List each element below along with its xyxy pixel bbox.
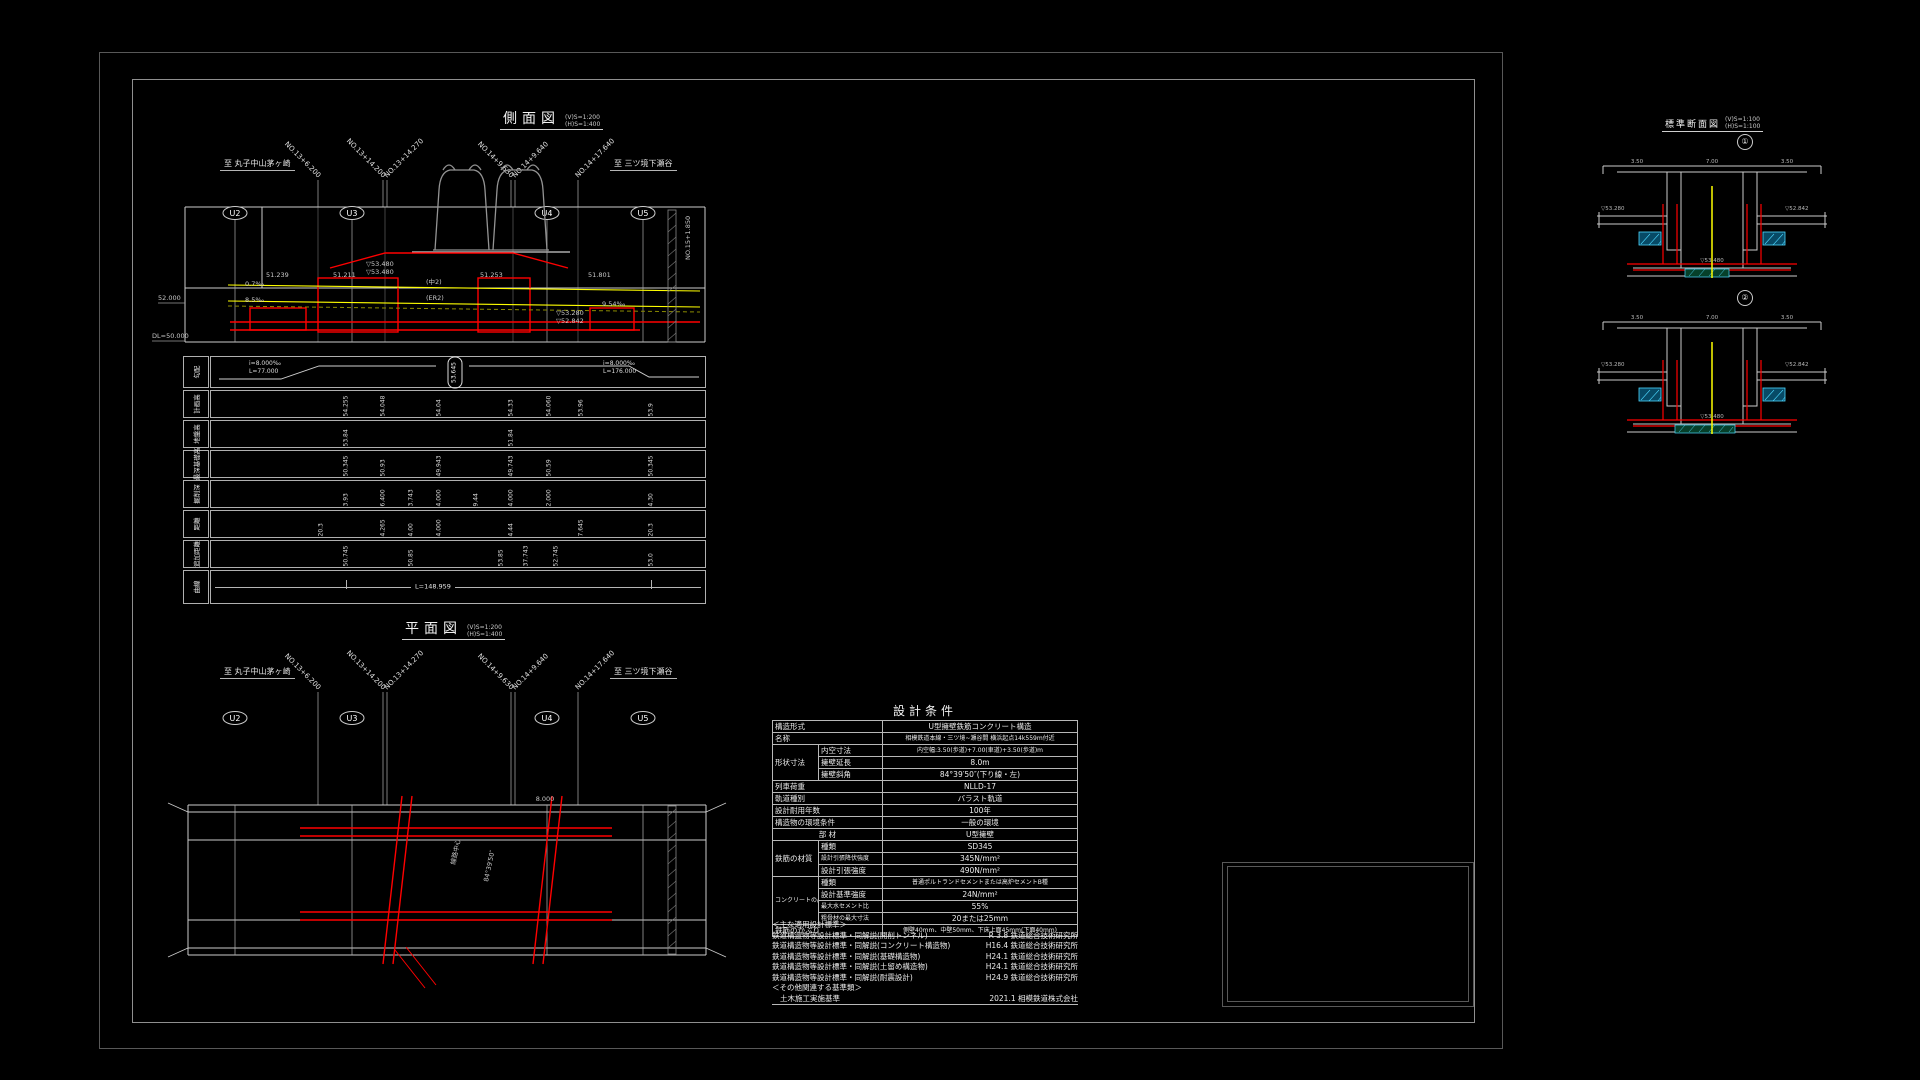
band-value: 7.645 (578, 507, 585, 537)
note-track-centerline: 線路中心 (448, 838, 462, 866)
standards-header-text: ＜主な適用設計標準＞ (772, 920, 847, 931)
band-row-label: 掘削深 (191, 484, 201, 504)
standard-ref: H24.9 鉄道総合技術研究所 (986, 973, 1078, 984)
band-value: 4.000 (436, 507, 443, 537)
band-row-label: 地盤高 (191, 424, 201, 444)
band-row-label: 計画高 (191, 394, 201, 414)
band-row-label-cell: 計画高 (183, 390, 209, 418)
standard-ref: H24.1 鉄道総合技術研究所 (986, 952, 1078, 963)
annotation: ▽53.480 (366, 268, 394, 276)
pier-U3: U3 (340, 712, 364, 725)
annotation: 9.54‰ (602, 300, 625, 308)
annotation: 8.5‰ (245, 296, 264, 304)
row-value: バラスト軌道 (883, 793, 1078, 805)
row-sub-label: 擁壁延長 (819, 757, 883, 769)
row-label: 部 材 (773, 829, 883, 841)
band-value: 37.743 (523, 537, 530, 567)
row-value: 100年 (883, 805, 1078, 817)
sections-title-text: 標準断面図 (1665, 117, 1720, 130)
table-row: 形状寸法 内空寸法 内空幅:3.50(歩道)+7.00(車道)+3.50(歩道)… (773, 745, 1078, 757)
table-row: 構造形式 U型擁壁鉄筋コンクリート構造 (773, 721, 1078, 733)
table-row: 列車荷重 NLLD-17 (773, 781, 1078, 793)
standard-name: 鉄道構造物等設計標準・同解説(土留め構造物) (772, 962, 928, 973)
row-sub-label: 内空寸法 (819, 745, 883, 757)
pier-label: U4 (542, 714, 553, 723)
station-label: NO.14+17.640 (574, 649, 616, 691)
row-value: 普通ポルトランドセメントまたは高炉セメントB種 (883, 877, 1078, 889)
dim-label: 3.50 (1781, 159, 1794, 165)
standard-ref: R 3.8 鉄道総合技術研究所 (989, 931, 1078, 942)
pier-U3: U3 (340, 207, 364, 220)
row-value: 8.0m (883, 757, 1078, 769)
row-label: 列車荷重 (773, 781, 883, 793)
band-row-cumulative-distance: 50.745 50.85 53.85 37.743 52.745 53.0 (210, 540, 706, 568)
band-value: 53.9 (648, 387, 655, 417)
row-value: 一般の環境 (883, 817, 1078, 829)
pier-label: U2 (230, 714, 241, 723)
elevation-label: 52.000 (158, 294, 181, 302)
row-group-label: 鉄筋の材質 (773, 841, 819, 877)
table-row: 擁壁延長 8.0m (773, 757, 1078, 769)
dim-label: 7.00 (1706, 159, 1719, 165)
dim-label: 3.50 (1631, 315, 1644, 321)
side-view-drawing: NO.13+6.200 NO.13+14.200 NO.13+14.270 NO… (150, 110, 720, 360)
row-sub-label: 擁壁斜角 (819, 769, 883, 781)
plan-view-drawing: NO.13+6.200 NO.13+14.200 NO.13+14.270 NO… (150, 620, 730, 995)
gradient-text: i=8.000‰ (603, 360, 635, 367)
row-sub-label: 設計基準強度 (819, 889, 883, 901)
band-value: 4.30 (648, 477, 655, 507)
table-row: 部 材 U型擁壁 (773, 829, 1078, 841)
plan-hatch-strip (668, 806, 676, 954)
band-value: 53.96 (578, 387, 585, 417)
band-value: 4.44 (508, 507, 515, 537)
row-value: 内空幅:3.50(歩道)+7.00(車道)+3.50(歩道)m (883, 745, 1078, 757)
curve-tick (346, 580, 347, 589)
row-label: 構造物の環境条件 (773, 817, 883, 829)
level-mark: ▽52.842 (1785, 206, 1808, 212)
row-sub-label: 種類 (819, 841, 883, 853)
gradient-text: L=176.000 (603, 368, 636, 375)
station-label: NO.14+9.630 (476, 652, 515, 691)
cross-section-2: 3.50 7.00 3.50 ▽53.280 ▽52.842 ▽53.480 (1597, 308, 1827, 443)
standard-name: 鉄道構造物等設計標準・同解説(耐震設計) (772, 973, 913, 984)
row-value: 相模鉄道本線・三ツ境~瀬谷間 横浜起点14k559m付近 (883, 733, 1078, 745)
side-pier-marks: U2 U3 U4 U5 (223, 207, 655, 220)
pier-U2: U2 (223, 712, 247, 725)
band-row-label-cell: 最深基礎高 (183, 450, 209, 478)
dim-label: 3.50 (1781, 315, 1794, 321)
band-row-distance: 20.3 4.265 4.00 4.000 4.44 7.645 20.3 (210, 510, 706, 538)
standard-item: 鉄道構造物等設計標準・同解説(コンクリート構造物) H16.4 鉄道総合技術研究… (772, 941, 1078, 952)
gradient-text: i=8.000‰ (249, 360, 281, 367)
band-value: 52.745 (553, 537, 560, 567)
band-value: 50.745 (343, 537, 350, 567)
table-row: コンクリートの品質 種類 普通ポルトランドセメントまたは高炉セメントB種 (773, 877, 1078, 889)
table-row: 名称 相模鉄道本線・三ツ境~瀬谷間 横浜起点14k559m付近 (773, 733, 1078, 745)
band-row-label-cell: 掘削深 (183, 480, 209, 508)
dim-label: 3.50 (1631, 159, 1644, 165)
band-row-label: 勾配 (191, 366, 201, 379)
annotation: (中2) (426, 277, 442, 286)
row-sub-label: 種類 (819, 877, 883, 889)
annotation: ▽53.480 (366, 260, 394, 268)
plan-red-structure (300, 796, 612, 988)
section-annotations: 3.50 7.00 3.50 ▽53.280 ▽52.842 ▽53.480 (1601, 315, 1808, 420)
standard-ref: H24.1 鉄道総合技術研究所 (986, 962, 1078, 973)
band-row-gradient: i=8.000‰ L=77.000 53.645 i=8.000‰ L=176.… (210, 356, 706, 388)
row-value: 24N/mm² (883, 889, 1078, 901)
note-skew-angle: 84°39′50″ (482, 849, 497, 882)
standards-header: ＜主な適用設計標準＞ (772, 920, 1078, 931)
plan-station-labels: NO.13+6.200 NO.13+14.200 NO.13+14.270 NO… (283, 649, 616, 691)
band-value: 51.84 (508, 417, 515, 447)
pier-label: U2 (230, 209, 241, 218)
design-conditions-header: 設計条件 (772, 700, 1078, 719)
standard-item: 鉄道構造物等設計標準・同解説(土留め構造物) H24.1 鉄道総合技術研究所 (772, 962, 1078, 973)
section-mark-2: ② (1737, 290, 1753, 306)
note-length: 8.000 (536, 795, 555, 803)
row-label: 名称 (773, 733, 883, 745)
table-row: 擁壁斜角 84°39′50″(下り線・左) (773, 769, 1078, 781)
level-mark: ▽53.480 (1700, 414, 1724, 420)
annotation: ▽52.842 (556, 317, 584, 325)
band-row-foundation-height: 50.345 50.93 49.943 49.743 50.59 50.345 (210, 450, 706, 478)
pier-label: U5 (638, 209, 649, 218)
station-label: NO.14+9.640 (511, 652, 550, 691)
curve-line (215, 587, 701, 588)
title-block-inner (1227, 866, 1469, 1002)
sections-scale-h: (H)S=1:100 (1725, 123, 1760, 130)
band-row-curve: L=148.959 (210, 570, 706, 604)
station-label: NO.13+14.270 (383, 649, 425, 691)
row-group-label: 形状寸法 (773, 745, 819, 781)
pier-label: U4 (542, 209, 553, 218)
row-label: 軌道種別 (773, 793, 883, 805)
band-value: 4.265 (380, 507, 387, 537)
band-value: 50.345 (343, 447, 350, 477)
annotation: ▽53.280 (556, 309, 584, 317)
gradient-text: L=77.000 (249, 368, 278, 375)
annotation: 51.211 (333, 271, 356, 279)
side-station-labels: NO.13+6.200 NO.13+14.200 NO.13+14.270 NO… (283, 137, 616, 179)
cad-sheet-canvas: 側面図 (V)S=1:200 (H)S=1:400 至 丸子中山茅ヶ崎 至 三ツ… (0, 0, 1920, 1080)
table-row: 設計引張強度 490N/mm² (773, 865, 1078, 877)
table-row: 設計引張降伏強度 345N/mm² (773, 853, 1078, 865)
pier-label: U3 (347, 714, 358, 723)
cross-section-1: 3.50 7.00 3.50 ▽53.280 ▽52.842 ▽53.480 (1597, 152, 1827, 287)
band-value: 50.85 (408, 537, 415, 567)
band-value: 54.33 (508, 387, 515, 417)
row-group-label: コンクリートの品質 (773, 877, 819, 925)
band-value: 49.743 (508, 447, 515, 477)
band-row-label: 追加距離 (191, 541, 201, 567)
band-row-excavation-depth: 3.93 6.400 3.743 4.000 9.44 4.000 2.000 … (210, 480, 706, 508)
annotation: 51.801 (588, 271, 611, 279)
section-mark-1: ① (1737, 134, 1753, 150)
table-row: 鉄筋の材質 種類 SD345 (773, 841, 1078, 853)
station-label: NO.13+14.270 (383, 137, 425, 179)
annotation: 51.253 (480, 271, 503, 279)
table-row: 最大水セメント比 55% (773, 901, 1078, 913)
standard-item: 鉄道構造物等設計標準・同解説(耐震設計) H24.9 鉄道総合技術研究所 (772, 973, 1078, 984)
band-value: 54.060 (546, 387, 553, 417)
standard-ref: H16.4 鉄道総合技術研究所 (986, 941, 1078, 952)
band-row-label-cell: 地盤高 (183, 420, 209, 448)
band-value: 3.93 (343, 477, 350, 507)
annotation: 0.7‰ (245, 280, 264, 288)
section-annotations: 3.50 7.00 3.50 ▽53.280 ▽52.842 ▽53.480 (1601, 159, 1808, 264)
row-sub-label: 最大水セメント比 (819, 901, 883, 913)
plan-notes: 線路中心 84°39′50″ 8.000 (448, 795, 554, 882)
pier-U4: U4 (535, 207, 559, 220)
station-label: NO.14+9.630 (476, 140, 515, 179)
band-value: 53.84 (343, 417, 350, 447)
others-header: ＜その他関連する基準類＞ (772, 983, 1078, 994)
design-conditions-title: 設計条件 (885, 704, 965, 721)
profile-band-table: 勾配 i=8.000‰ L=77.000 53.645 i=8.000‰ L=1… (183, 356, 707, 604)
band-row-label: 最深基礎高 (191, 448, 201, 481)
standard-item: 鉄道構造物等設計標準・同解説(基礎構造物) H24.1 鉄道総合技術研究所 (772, 952, 1078, 963)
level-mark: ▽53.280 (1601, 206, 1625, 212)
pier-U5: U5 (631, 207, 655, 220)
plan-station-leaders (318, 692, 578, 805)
band-value: 9.44 (473, 477, 480, 507)
level-mark: ▽53.280 (1601, 362, 1625, 368)
plan-pier-marks: U2 U3 U4 U5 (223, 712, 655, 725)
standard-name: 鉄道構造物等設計標準・同解説(コンクリート構造物) (772, 941, 950, 952)
table-row: 設計基準強度 24N/mm² (773, 889, 1078, 901)
band-value: 6.400 (380, 477, 387, 507)
table-row: 設計耐用年数 100年 (773, 805, 1078, 817)
pier-U2: U2 (223, 207, 247, 220)
band-row-ground-height: 53.84 51.84 (210, 420, 706, 448)
band-value: 20.3 (318, 507, 325, 537)
annotation: 51.239 (266, 271, 289, 279)
curve-length-label: L=148.959 (411, 583, 455, 591)
others-header-text: ＜その他関連する基準類＞ (772, 983, 862, 994)
side-station-leaders (318, 180, 578, 207)
table-row: 構造物の環境条件 一般の環境 (773, 817, 1078, 829)
standard-name: 土木施工実施基準 (772, 994, 840, 1005)
pier-U4: U4 (535, 712, 559, 725)
band-value: 54.04 (436, 387, 443, 417)
pier-label: U3 (347, 209, 358, 218)
sections-scale-v: (V)S=1:100 (1725, 116, 1760, 123)
band-value: 4.000 (508, 477, 515, 507)
band-value: 53.85 (498, 537, 505, 567)
row-value: SD345 (883, 841, 1078, 853)
band-row-label: 曲線 (191, 581, 201, 594)
standard-name: 鉄道構造物等設計標準・同解説(開削トンネル) (772, 931, 928, 942)
band-value: 53.0 (648, 537, 655, 567)
station-label: NO.14+17.640 (574, 137, 616, 179)
pier-label: U5 (638, 714, 649, 723)
station-label: NO.14+9.640 (511, 140, 550, 179)
annotation: (ER2) (426, 294, 444, 302)
sections-scale: (V)S=1:100 (H)S=1:100 (1725, 116, 1760, 130)
band-value: 50.93 (380, 447, 387, 477)
band-value: 50.345 (648, 447, 655, 477)
band-value: 20.3 (648, 507, 655, 537)
band-value: 50.59 (546, 447, 553, 477)
standard-ref: 2021.1 相模鉄道株式会社 (989, 994, 1078, 1005)
band-row-planned-height: 54.255 54.048 54.04 54.33 54.060 53.96 5… (210, 390, 706, 418)
band-value: 4.00 (408, 507, 415, 537)
band-value: 49.943 (436, 447, 443, 477)
row-value: NLLD-17 (883, 781, 1078, 793)
row-label: 設計耐用年数 (773, 805, 883, 817)
annotation: NO.15+1.850 (684, 216, 692, 260)
band-row-label-cell: 曲線 (183, 570, 209, 604)
row-value: 490N/mm² (883, 865, 1078, 877)
row-sub-label: 設計引張強度 (819, 865, 883, 877)
dim-label: 7.00 (1706, 315, 1719, 321)
band-row-label: 距離 (191, 518, 201, 531)
elevation-marks: 52.000 DL=50.000 (152, 294, 189, 341)
red-structure-profile (230, 253, 700, 332)
design-conditions-table: 構造形式 U型擁壁鉄筋コンクリート構造 名称 相模鉄道本線・三ツ境~瀬谷間 横浜… (772, 720, 1078, 937)
station-label: NO.13+14.200 (345, 137, 387, 179)
level-mark: ▽53.480 (1700, 258, 1724, 264)
standard-item: 鉄道構造物等設計標準・同解説(開削トンネル) R 3.8 鉄道総合技術研究所 (772, 931, 1078, 942)
pier-U5: U5 (631, 712, 655, 725)
row-value: U型擁壁鉄筋コンクリート構造 (883, 721, 1078, 733)
band-value: 54.255 (343, 387, 350, 417)
elevation-label: DL=50.000 (152, 332, 189, 340)
other-standard-item: 土木施工実施基準 2021.1 相模鉄道株式会社 (772, 994, 1078, 1006)
level-mark: ▽52.842 (1785, 362, 1808, 368)
plan-structure-lines (168, 803, 726, 957)
band-value: 4.000 (436, 477, 443, 507)
band-row-label-cell: 追加距離 (183, 540, 209, 568)
row-value: 84°39′50″(下り線・左) (883, 769, 1078, 781)
row-value: 345N/mm² (883, 853, 1078, 865)
row-label: 構造形式 (773, 721, 883, 733)
station-label: NO.13+6.200 (283, 652, 322, 691)
table-row: 軌道種別 バラスト軌道 (773, 793, 1078, 805)
band-value: 54.048 (380, 387, 387, 417)
band-value: 2.000 (546, 477, 553, 507)
station-label: NO.13+14.200 (345, 649, 387, 691)
station-label: NO.13+6.200 (283, 140, 322, 179)
row-sub-label: 設計引張降伏強度 (819, 853, 883, 865)
band-row-label-cell: 勾配 (183, 356, 209, 388)
design-standards-list: ＜主な適用設計標準＞ 鉄道構造物等設計標準・同解説(開削トンネル) R 3.8 … (772, 920, 1078, 1005)
gradient-elevation-oval: 53.645 (448, 357, 463, 389)
curve-tick (651, 580, 652, 589)
band-value: 3.743 (408, 477, 415, 507)
standard-name: 鉄道構造物等設計標準・同解説(基礎構造物) (772, 952, 920, 963)
row-value: 55% (883, 901, 1078, 913)
band-row-label-cell: 距離 (183, 510, 209, 538)
row-value: U型擁壁 (883, 829, 1078, 841)
sections-title: 標準断面図 (V)S=1:100 (H)S=1:100 (1662, 112, 1763, 132)
